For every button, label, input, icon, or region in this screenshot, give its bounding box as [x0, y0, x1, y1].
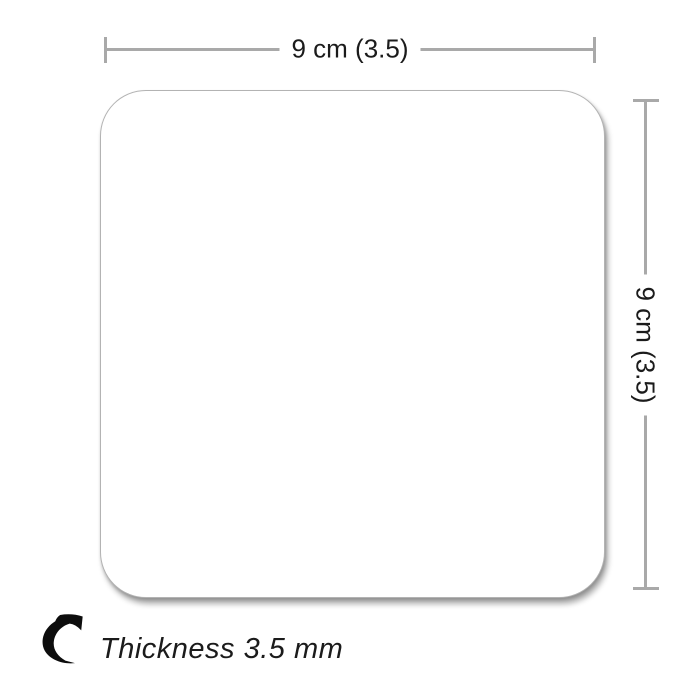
width-dimension-tick-right — [593, 37, 596, 63]
curved-arrow-icon — [37, 612, 87, 668]
height-dimension-tick-bottom — [633, 587, 659, 590]
thickness-note: Thickness 3.5 mm — [37, 612, 343, 668]
coaster-product — [100, 90, 605, 598]
height-dimension-label: 9 cm (3.5) — [629, 274, 660, 415]
width-dimension-label: 9 cm (3.5) — [279, 33, 420, 64]
thickness-label: Thickness 3.5 mm — [100, 633, 343, 666]
height-dimension: 9 cm (3.5) — [633, 99, 659, 590]
product-dimension-diagram: 9 cm (3.5) 9 cm (3.5) Thickness 3.5 mm — [0, 0, 700, 700]
width-dimension: 9 cm (3.5) — [104, 37, 596, 63]
